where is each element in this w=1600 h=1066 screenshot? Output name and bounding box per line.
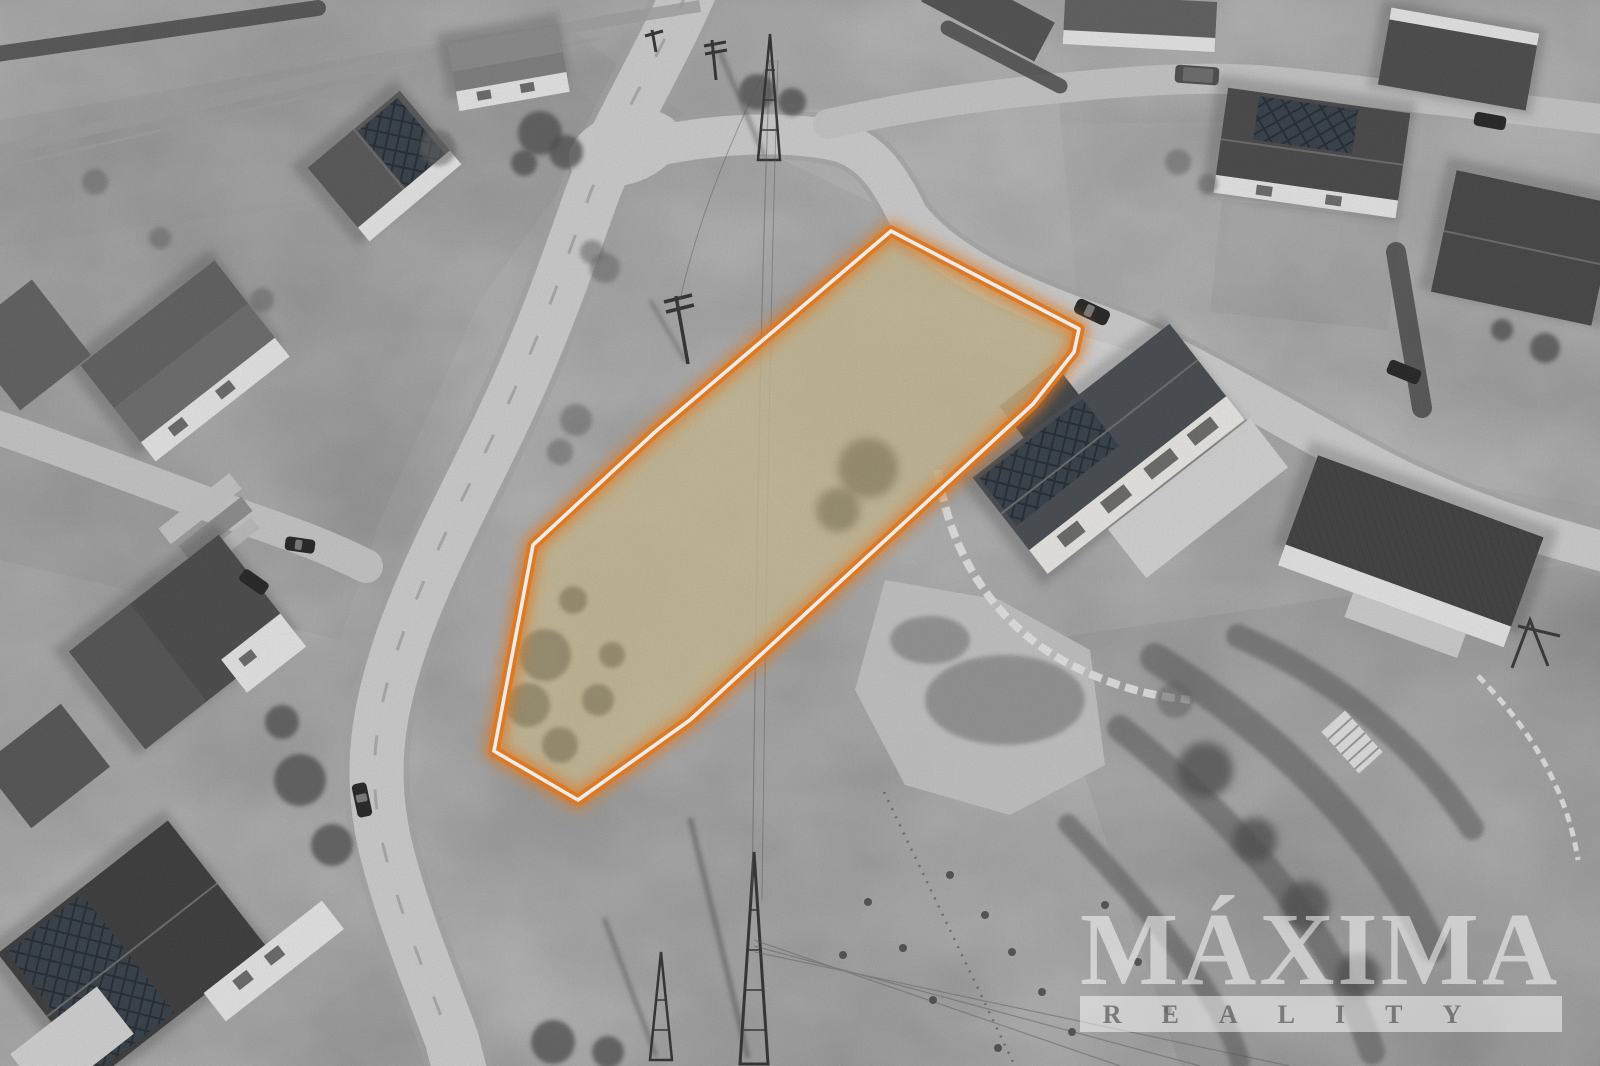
scene-svg: MÁXIMA REALITY	[0, 0, 1600, 1066]
watermark: MÁXIMA REALITY	[1080, 892, 1562, 1032]
watermark-title: MÁXIMA	[1080, 892, 1560, 1007]
watermark-subtitle: REALITY	[1103, 1000, 1501, 1029]
aerial-photo: MÁXIMA REALITY	[0, 0, 1600, 1066]
